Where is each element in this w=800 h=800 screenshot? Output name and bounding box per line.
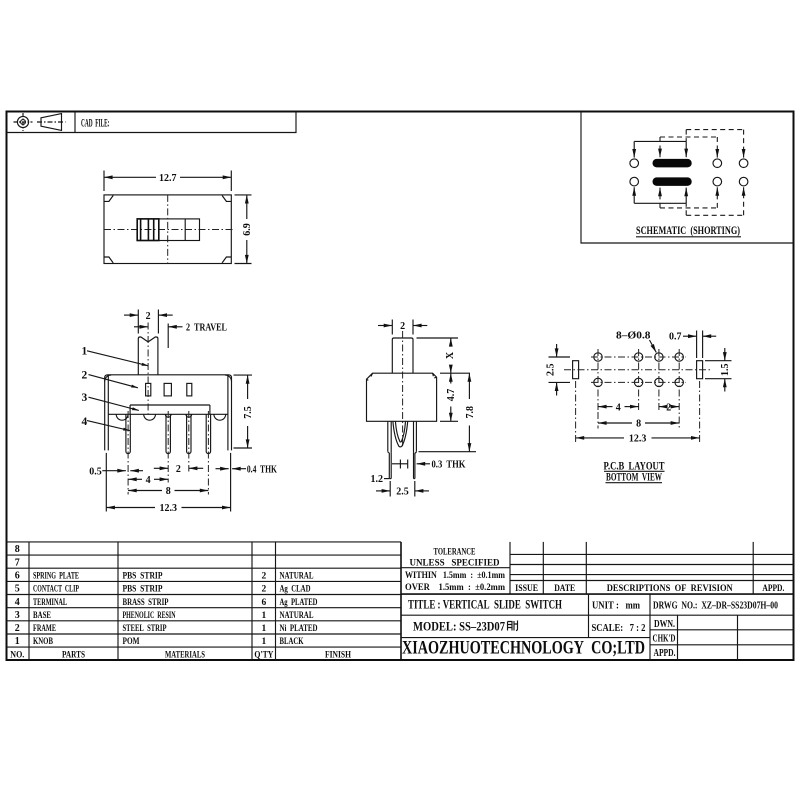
svg-text:1: 1 (262, 624, 267, 634)
svg-text:TITLE : VERTICAL SLIDE SWITC: TITLE : VERTICAL SLIDE SWITCH (408, 598, 562, 612)
svg-text:BLACK: BLACK (280, 637, 304, 647)
svg-text:CHK'D: CHK'D (653, 633, 676, 644)
svg-text:6.9: 6.9 (242, 223, 253, 236)
svg-text:1: 1 (262, 637, 267, 647)
svg-text:4: 4 (616, 402, 621, 413)
svg-text:OVER 1.5mm : ±0.2mm: OVER 1.5mm : ±0.2mm (405, 583, 505, 593)
svg-text:ISSUE: ISSUE (515, 584, 538, 594)
svg-text:6: 6 (15, 571, 20, 582)
svg-text:1: 1 (15, 636, 20, 647)
svg-text:PBS STRIP: PBS STRIP (123, 585, 163, 595)
svg-text:2: 2 (82, 370, 88, 382)
svg-text:8: 8 (166, 486, 171, 497)
svg-text:PHENOLIC RESIN: PHENOLIC RESIN (123, 611, 176, 621)
svg-text:TERMINAL: TERMINAL (33, 598, 67, 608)
svg-text:CONTACT CLIP: CONTACT CLIP (33, 585, 79, 595)
svg-text:UNLESS SPECIFIED: UNLESS SPECIFIED (410, 559, 500, 569)
svg-text:4: 4 (146, 475, 151, 486)
svg-text:7.5: 7.5 (243, 406, 254, 419)
svg-text:6: 6 (262, 598, 267, 608)
svg-text:3: 3 (15, 610, 20, 621)
svg-text:PARTS: PARTS (62, 650, 85, 660)
svg-text:XIAOZHUOTECHNOLOGY CO;LTD: XIAOZHUOTECHNOLOGY CO;LTD (402, 638, 645, 659)
svg-text:Ag CLAD: Ag CLAD (280, 585, 311, 595)
svg-text:2.5: 2.5 (396, 487, 409, 498)
svg-text:5: 5 (15, 584, 20, 595)
svg-text:STEEL STRIP: STEEL STRIP (123, 624, 167, 634)
svg-text:0.3 THK: 0.3 THK (432, 459, 466, 470)
svg-text:4: 4 (82, 416, 88, 428)
svg-text:8–Ø0.8: 8–Ø0.8 (616, 331, 651, 342)
svg-text:APPD.: APPD. (762, 584, 784, 594)
svg-text:4.7: 4.7 (446, 389, 457, 402)
svg-text:FRAME: FRAME (33, 624, 56, 634)
svg-text:1.2: 1.2 (371, 474, 384, 485)
svg-text:Ag PLATED: Ag PLATED (280, 598, 318, 608)
svg-text:MATERIALS: MATERIALS (165, 650, 205, 660)
svg-text:SCALE: 7 : 2: SCALE: 7 : 2 (592, 623, 646, 634)
svg-text:NO.: NO. (10, 650, 24, 660)
svg-text:12.7: 12.7 (159, 173, 177, 184)
svg-text:8: 8 (15, 544, 20, 555)
svg-text:DATE: DATE (554, 584, 575, 594)
svg-text:8: 8 (636, 419, 641, 430)
svg-text:SCHEMATIC (SHORTING): SCHEMATIC (SHORTING) (636, 225, 740, 237)
svg-text:2: 2 (146, 311, 151, 322)
svg-text:CAD FILE:: CAD FILE: (81, 118, 110, 130)
svg-text:NATURAL: NATURAL (280, 572, 314, 582)
svg-text:MODEL: SS–23D07: MODEL: SS–23D07 (413, 620, 505, 634)
svg-text:DWN.: DWN. (654, 619, 675, 630)
svg-text:1.5: 1.5 (720, 363, 731, 376)
svg-text:3: 3 (82, 392, 88, 404)
svg-text:0.4 THK: 0.4 THK (247, 464, 277, 475)
svg-text:X: X (445, 351, 456, 359)
svg-text:BASE: BASE (33, 611, 51, 621)
svg-text:2: 2 (400, 321, 405, 332)
svg-text:Q'TY: Q'TY (254, 650, 273, 660)
svg-text:7.8: 7.8 (465, 406, 476, 419)
svg-text:Ni PLATED: Ni PLATED (280, 624, 318, 634)
svg-text:1: 1 (262, 611, 267, 621)
svg-text:UNIT : mm: UNIT : mm (592, 601, 641, 612)
svg-text:PBS STRIP: PBS STRIP (123, 572, 163, 582)
svg-text:0.5: 0.5 (89, 466, 102, 477)
svg-text:1: 1 (82, 346, 88, 358)
svg-text:BOTTOM VIEW: BOTTOM VIEW (606, 472, 662, 484)
svg-text:POM: POM (123, 637, 140, 647)
svg-text:2: 2 (262, 572, 267, 582)
svg-text:DRWG NO.: XZ–DR–SS23D07H–00: DRWG NO.: XZ–DR–SS23D07H–00 (653, 600, 778, 611)
svg-text:12.3: 12.3 (159, 503, 177, 514)
svg-text:APPD.: APPD. (654, 648, 676, 659)
svg-text:FINISH: FINISH (325, 650, 351, 660)
svg-text:0.7: 0.7 (669, 332, 682, 343)
svg-text:2: 2 (666, 402, 671, 413)
svg-text:DESCRIPTIONS OF REVISION: DESCRIPTIONS OF REVISION (607, 584, 733, 594)
svg-text:WITHIN 1.5mm : ±0.1mm: WITHIN 1.5mm : ±0.1mm (405, 571, 505, 581)
svg-text:KNOB: KNOB (33, 637, 53, 647)
svg-text:TOLERANCE: TOLERANCE (434, 548, 476, 558)
svg-text:2 TRAVEL: 2 TRAVEL (186, 323, 227, 334)
svg-text:2: 2 (15, 623, 20, 634)
svg-text:2.5: 2.5 (546, 363, 557, 376)
svg-text:12.3: 12.3 (629, 434, 647, 445)
svg-text:7: 7 (15, 557, 20, 568)
svg-text:4: 4 (15, 597, 20, 608)
svg-text:P.C.B LAYOUT: P.C.B LAYOUT (604, 460, 665, 472)
svg-text:BRASS STRIP: BRASS STRIP (123, 598, 169, 608)
svg-text:SPRING PLATE: SPRING PLATE (33, 572, 79, 582)
svg-text:2: 2 (176, 464, 181, 475)
svg-text:2: 2 (262, 585, 267, 595)
svg-text:NATURAL: NATURAL (280, 611, 314, 621)
